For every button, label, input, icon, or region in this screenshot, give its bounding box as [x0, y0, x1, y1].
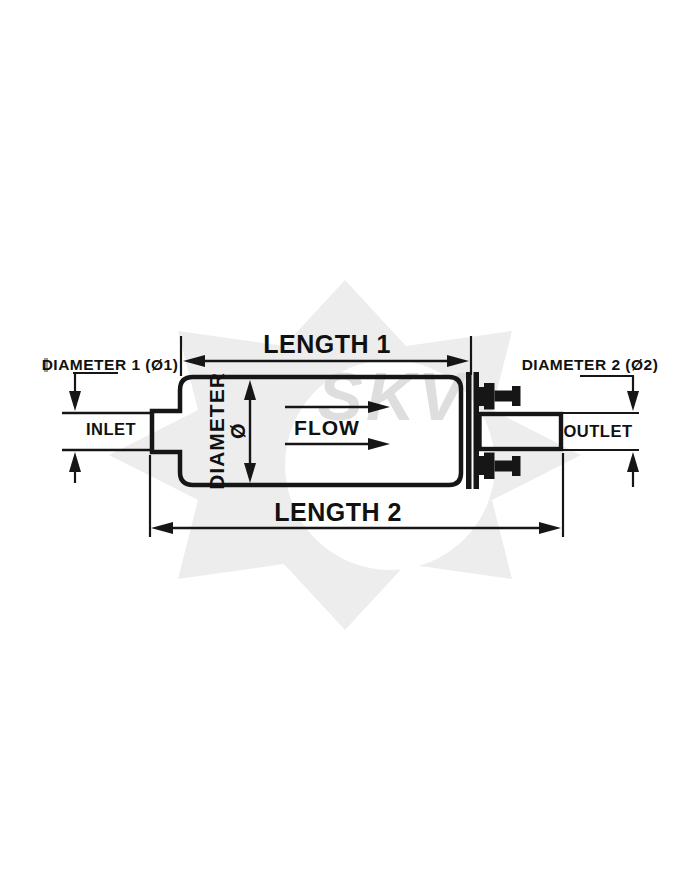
label-outlet: OUTLET: [564, 423, 633, 440]
arrowhead-left: [151, 522, 173, 534]
arrowhead-down: [627, 391, 639, 411]
arrowhead-down: [69, 391, 81, 411]
label-diameter2: DIAMETER 2 (Ø2): [522, 357, 659, 373]
arrowhead-right: [539, 522, 561, 534]
label-length1: LENGTH 1: [263, 332, 391, 357]
label-flow: FLOW: [294, 417, 360, 438]
label-diameter1: DIAMETER 1 (Ø1): [42, 357, 179, 373]
label-body-diameter: DIAMETER: [206, 372, 227, 490]
arrowhead-up: [627, 452, 639, 472]
fuel-pump-dimension-diagram: SKV: [0, 0, 700, 869]
label-length2: LENGTH 2: [274, 500, 402, 525]
label-inlet: INLET: [86, 421, 136, 438]
label-diameter-symbol: Ø: [228, 423, 248, 439]
arrowhead-up: [69, 452, 81, 472]
